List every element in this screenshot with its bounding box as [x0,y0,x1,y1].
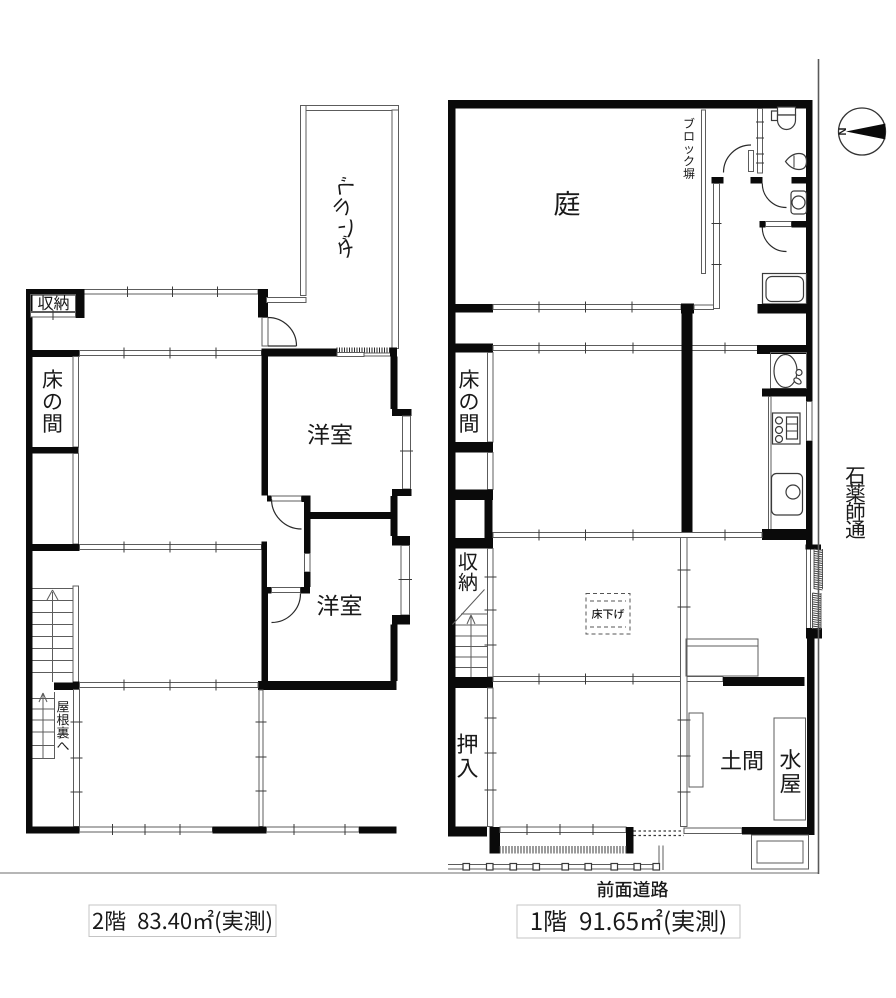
svg-text:N: N [837,127,849,135]
